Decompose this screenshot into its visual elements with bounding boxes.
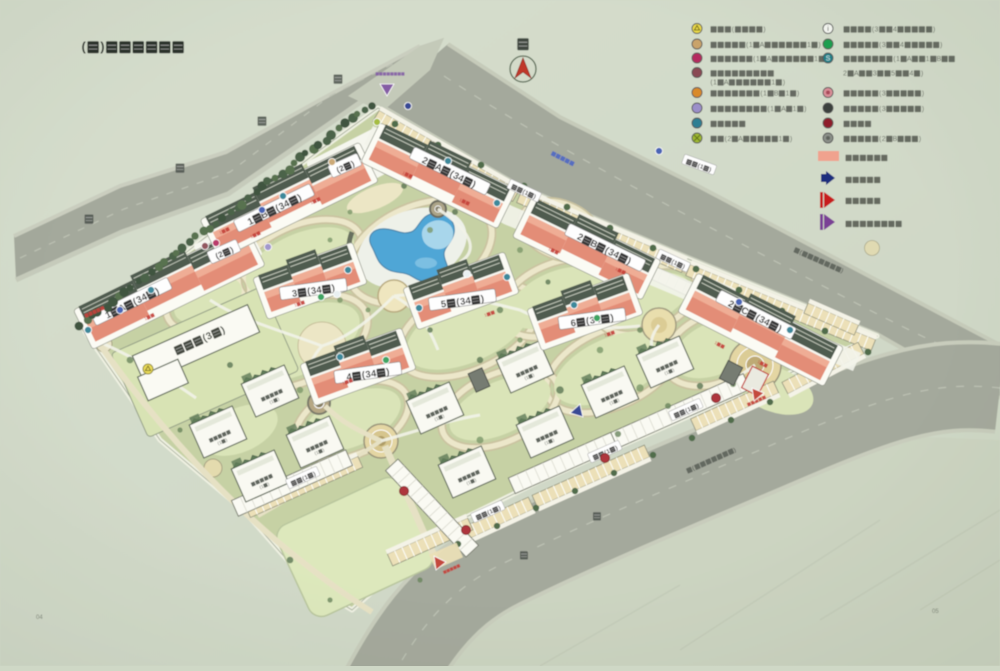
svg-text:2: 2 <box>882 136 886 143</box>
svg-text:2: 2 <box>843 71 847 78</box>
svg-text:3: 3 <box>873 71 877 78</box>
svg-text:): ) <box>763 27 765 34</box>
svg-text:05: 05 <box>932 609 939 615</box>
svg-text:B: B <box>937 56 942 63</box>
svg-text:S: S <box>826 56 831 63</box>
svg-text:): ) <box>804 106 806 113</box>
svg-text:1: 1 <box>793 106 797 113</box>
svg-text:): ) <box>797 91 799 98</box>
svg-text:1: 1 <box>896 56 900 63</box>
svg-text:): ) <box>922 91 924 98</box>
svg-text:1: 1 <box>778 136 782 143</box>
svg-text:1: 1 <box>756 56 760 63</box>
svg-text:3: 3 <box>882 106 886 113</box>
svg-text:2: 2 <box>727 136 731 143</box>
svg-text:): ) <box>919 136 921 143</box>
svg-text:3: 3 <box>875 27 879 34</box>
svg-text:): ) <box>783 80 785 87</box>
svg-text:): ) <box>790 136 792 143</box>
svg-text:1: 1 <box>770 106 774 113</box>
svg-text:A: A <box>738 136 743 143</box>
svg-text:4: 4 <box>909 71 913 78</box>
svg-text:1: 1 <box>771 80 775 87</box>
svg-text:1: 1 <box>814 56 818 63</box>
svg-text:): ) <box>933 27 935 34</box>
svg-text:4: 4 <box>900 42 904 49</box>
svg-text:1: 1 <box>713 80 717 87</box>
svg-text:5: 5 <box>891 71 895 78</box>
svg-text:(: ( <box>82 39 87 54</box>
svg-text:1: 1 <box>926 56 930 63</box>
svg-text:A: A <box>724 80 729 87</box>
svg-text:A: A <box>781 106 786 113</box>
svg-text:): ) <box>922 106 924 113</box>
svg-text:3: 3 <box>882 42 886 49</box>
svg-text:A: A <box>854 71 859 78</box>
svg-text:1: 1 <box>786 91 790 98</box>
svg-text:B: B <box>893 136 898 143</box>
svg-text:B: B <box>774 91 779 98</box>
svg-text:A: A <box>760 42 765 49</box>
svg-text:1: 1 <box>749 42 753 49</box>
svg-text:4: 4 <box>893 27 897 34</box>
svg-text:04: 04 <box>36 615 43 621</box>
svg-text:): ) <box>818 42 820 49</box>
svg-text:3: 3 <box>882 91 886 98</box>
svg-text:): ) <box>921 71 923 78</box>
svg-text:A: A <box>767 56 772 63</box>
svg-text:): ) <box>940 42 942 49</box>
svg-text:1: 1 <box>763 91 767 98</box>
svg-text:): ) <box>100 39 104 54</box>
svg-text:A: A <box>907 56 912 63</box>
svg-text:1: 1 <box>807 42 811 49</box>
